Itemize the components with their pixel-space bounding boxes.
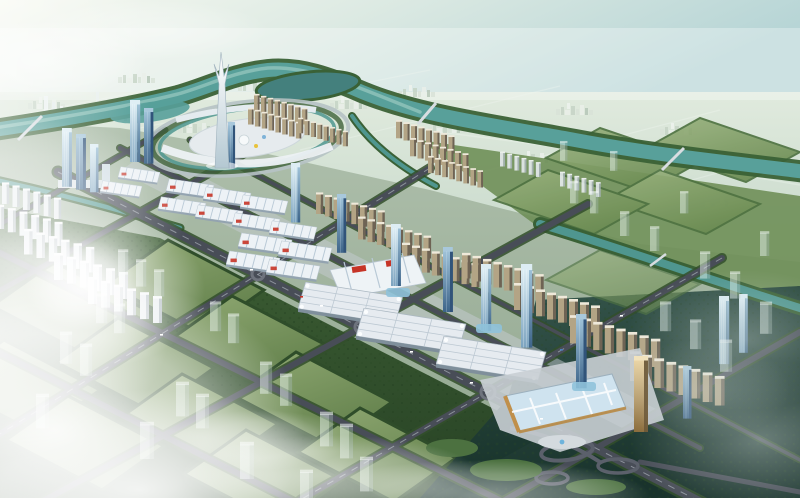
- right-haze: [610, 340, 790, 440]
- ghost-building: [680, 191, 688, 213]
- glass-tower: [337, 194, 346, 253]
- car: [320, 305, 323, 307]
- car: [620, 315, 623, 317]
- podium: [386, 288, 410, 297]
- ghost-building: [590, 191, 598, 213]
- ghost-building: [570, 181, 578, 203]
- glass-tower: [443, 247, 453, 312]
- car: [470, 382, 473, 384]
- glass-tower-tall: [521, 264, 532, 348]
- ghost-building: [560, 141, 567, 161]
- plaza-detail: [262, 135, 266, 139]
- masterplan-scene: [0, 0, 800, 498]
- podium: [476, 324, 502, 333]
- cloud-wisp: [30, 0, 270, 60]
- ghost-building: [650, 226, 659, 251]
- fountain: [560, 440, 565, 445]
- masterplan-rendering: [0, 0, 800, 498]
- glass-tower: [291, 163, 300, 223]
- glass-tower: [391, 224, 401, 286]
- glass-tower: [481, 264, 491, 331]
- ghost-building: [760, 231, 769, 256]
- ring-tower: [228, 122, 235, 169]
- plaza-detail: [254, 144, 258, 148]
- car: [250, 269, 253, 271]
- car: [300, 296, 303, 298]
- car: [540, 418, 543, 420]
- podium: [572, 382, 596, 391]
- car: [560, 349, 563, 351]
- ghost-building: [620, 211, 629, 236]
- car: [410, 351, 413, 353]
- ghost-building: [610, 151, 617, 171]
- glass-tower: [576, 314, 587, 388]
- plaza-dome: [239, 135, 249, 145]
